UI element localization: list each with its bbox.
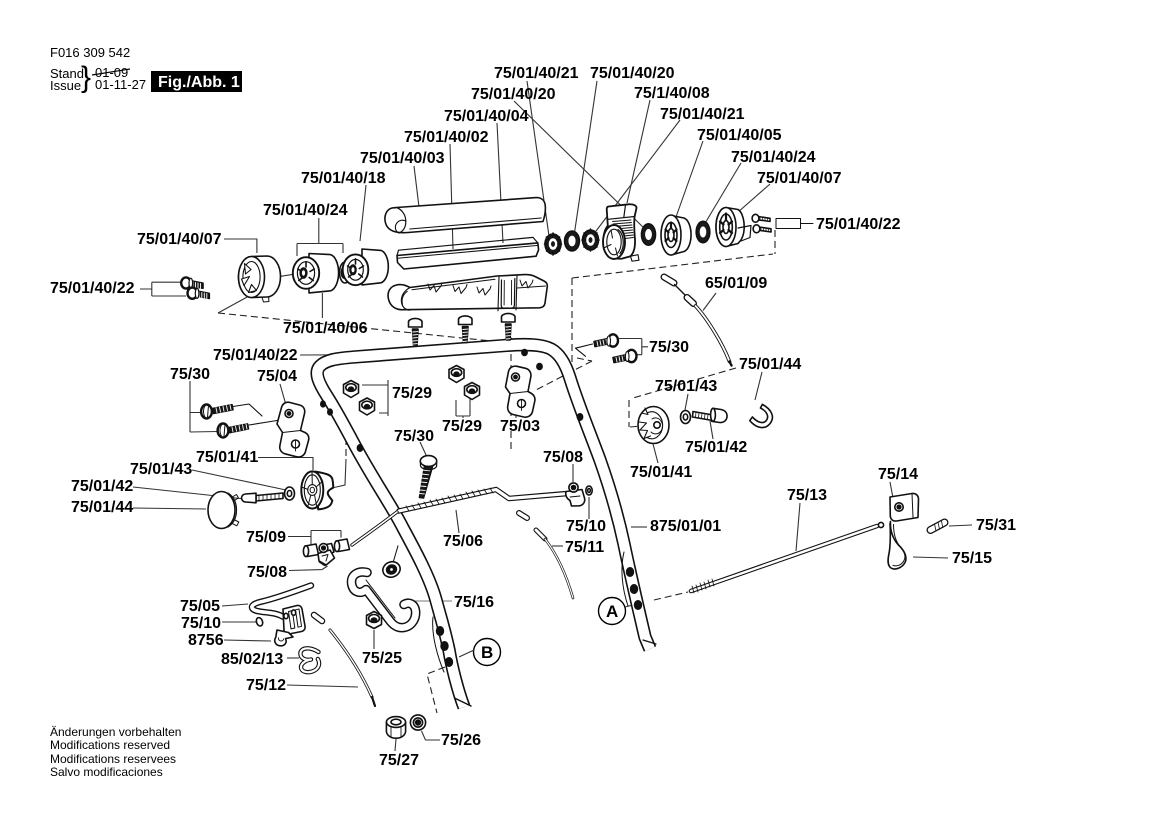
svg-text:Salvo modificaciones: Salvo modificaciones xyxy=(50,765,163,779)
svg-text:75/27: 75/27 xyxy=(379,752,419,769)
svg-text:75/01/40/06: 75/01/40/06 xyxy=(283,320,368,337)
svg-text:75/08: 75/08 xyxy=(247,564,287,581)
svg-text:8756: 8756 xyxy=(188,632,224,649)
svg-text:75/29: 75/29 xyxy=(442,418,482,435)
svg-text:75/16: 75/16 xyxy=(454,594,494,611)
svg-text:75/31: 75/31 xyxy=(976,517,1016,534)
svg-text:75/05: 75/05 xyxy=(180,598,220,615)
svg-text:75/01/40/22: 75/01/40/22 xyxy=(816,216,901,233)
svg-text:75/01/44: 75/01/44 xyxy=(71,499,133,516)
svg-text:75/13: 75/13 xyxy=(787,487,827,504)
svg-text:75/01/40/22: 75/01/40/22 xyxy=(50,280,135,297)
svg-text:}: } xyxy=(81,61,91,94)
svg-text:75/1/40/08: 75/1/40/08 xyxy=(634,85,710,102)
svg-text:75/30: 75/30 xyxy=(170,366,210,383)
svg-text:75/03: 75/03 xyxy=(500,418,540,435)
svg-text:75/01/40/18: 75/01/40/18 xyxy=(301,170,386,187)
svg-text:75/09: 75/09 xyxy=(246,529,286,546)
svg-text:Modifications reservees: Modifications reservees xyxy=(50,752,176,766)
svg-text:75/01/40/03: 75/01/40/03 xyxy=(360,150,445,167)
svg-text:75/25: 75/25 xyxy=(362,650,402,667)
svg-text:75/01/44: 75/01/44 xyxy=(739,356,801,373)
svg-text:75/29: 75/29 xyxy=(392,385,432,402)
svg-text:Modifications reserved: Modifications reserved xyxy=(50,738,170,752)
svg-text:F016 309 542: F016 309 542 xyxy=(50,45,130,60)
svg-text:75/10: 75/10 xyxy=(566,518,606,535)
svg-text:01-11-27: 01-11-27 xyxy=(95,77,146,92)
svg-text:75/01/40/24: 75/01/40/24 xyxy=(731,149,816,166)
svg-text:Issue: Issue xyxy=(50,78,81,93)
svg-text:75/01/40/05: 75/01/40/05 xyxy=(697,127,782,144)
svg-text:75/01/40/24: 75/01/40/24 xyxy=(263,202,348,219)
svg-text:75/30: 75/30 xyxy=(649,339,689,356)
svg-text:75/30: 75/30 xyxy=(394,428,434,445)
svg-text:75/01/43: 75/01/43 xyxy=(130,461,192,478)
svg-text:75/01/40/04: 75/01/40/04 xyxy=(444,108,529,125)
svg-text:65/01/09: 65/01/09 xyxy=(705,275,767,292)
svg-text:75/04: 75/04 xyxy=(257,368,297,385)
svg-text:Änderungen vorbehalten: Änderungen vorbehalten xyxy=(50,725,181,739)
svg-text:A: A xyxy=(606,602,618,621)
svg-text:75/01/40/07: 75/01/40/07 xyxy=(137,231,222,248)
svg-text:75/01/43: 75/01/43 xyxy=(655,378,717,395)
svg-text:75/01/40/20: 75/01/40/20 xyxy=(590,65,675,82)
svg-text:B: B xyxy=(481,643,493,662)
svg-text:75/01/42: 75/01/42 xyxy=(685,439,747,456)
svg-text:75/01/42: 75/01/42 xyxy=(71,478,133,495)
svg-text:75/06: 75/06 xyxy=(443,533,483,550)
svg-text:75/26: 75/26 xyxy=(441,732,481,749)
svg-text:75/01/40/02: 75/01/40/02 xyxy=(404,129,489,146)
svg-text:85/02/13: 85/02/13 xyxy=(221,651,283,668)
svg-text:75/01/40/20: 75/01/40/20 xyxy=(471,86,556,103)
svg-text:75/14: 75/14 xyxy=(878,466,918,483)
svg-text:75/01/40/21: 75/01/40/21 xyxy=(494,65,579,82)
svg-text:875/01/01: 875/01/01 xyxy=(650,518,721,535)
svg-text:75/01/41: 75/01/41 xyxy=(630,464,692,481)
svg-text:75/01/40/22: 75/01/40/22 xyxy=(213,347,298,364)
svg-text:75/01/40/07: 75/01/40/07 xyxy=(757,170,842,187)
svg-text:75/10: 75/10 xyxy=(181,615,221,632)
svg-text:75/01/41: 75/01/41 xyxy=(196,449,258,466)
svg-text:Fig./Abb. 1: Fig./Abb. 1 xyxy=(158,74,240,91)
svg-text:75/11: 75/11 xyxy=(565,539,604,556)
svg-text:75/15: 75/15 xyxy=(952,550,992,567)
svg-text:75/01/40/21: 75/01/40/21 xyxy=(660,106,745,123)
svg-text:75/08: 75/08 xyxy=(543,449,583,466)
svg-text:75/12: 75/12 xyxy=(246,677,286,694)
